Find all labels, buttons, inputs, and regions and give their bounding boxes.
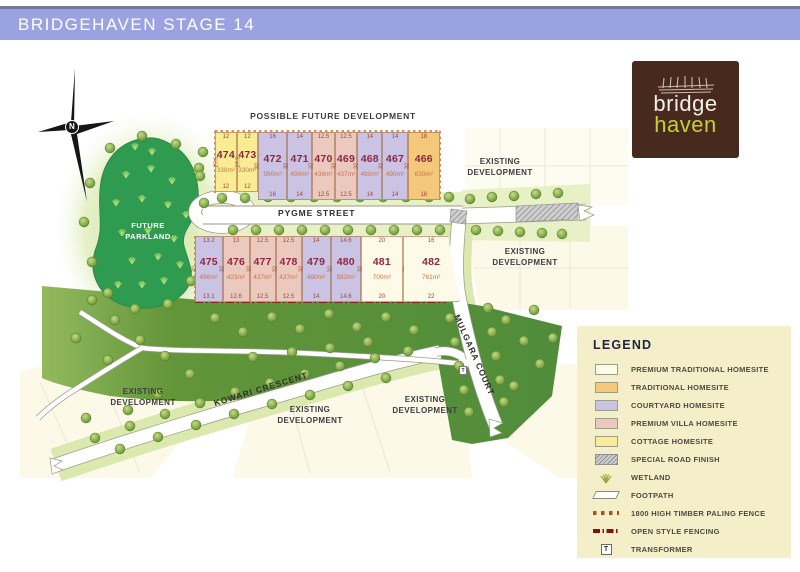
tree-icon	[103, 355, 113, 365]
lot-473-side_dim: 27.5	[236, 157, 242, 168]
tree-icon	[529, 305, 539, 315]
tree-icon	[352, 322, 362, 332]
transformer-icon: T	[593, 544, 619, 555]
tree-icon	[185, 369, 195, 379]
lot-469-bottom_dim: 12.5	[336, 192, 357, 198]
tree-icon	[85, 178, 95, 188]
tree-icon	[137, 131, 147, 141]
lot-470-side_dim: 32	[310, 163, 316, 169]
swatch	[593, 400, 619, 411]
lot-480-area: 582m²	[337, 275, 355, 282]
tree-icon	[87, 257, 97, 267]
legend-item-label: COTTAGE HOMESITE	[631, 437, 713, 446]
lot-474: 12474330m²1227.5	[215, 132, 237, 192]
lot-469-top_dim: 12.5	[336, 134, 357, 140]
tree-icon	[240, 193, 250, 203]
lot-476-area: 423m²	[227, 275, 245, 282]
tree-icon	[79, 217, 89, 227]
legend-item: COURTYARD HOMESITE	[593, 396, 791, 414]
tree-icon	[465, 194, 475, 204]
tree-icon	[248, 352, 258, 362]
tree-icon	[412, 225, 422, 235]
lot-466-side_dim: 32	[405, 163, 411, 169]
tree-icon	[487, 192, 497, 202]
lot-472-top_dim: 16	[259, 134, 286, 140]
lot-470-bottom_dim: 12.5	[313, 192, 334, 198]
lot-480-side_dim: 32	[328, 266, 334, 272]
legend-item-label: PREMIUM TRADITIONAL HOMESITE	[631, 365, 769, 374]
footpath-icon	[593, 491, 619, 499]
tree-icon	[409, 325, 419, 335]
lot-469-area: 437m²	[337, 172, 355, 179]
tree-icon	[153, 432, 163, 442]
transformer-letter: T	[601, 544, 612, 555]
tree-icon	[343, 225, 353, 235]
tree-icon	[130, 304, 140, 314]
tree-icon	[105, 143, 115, 153]
lot-476-side_dim: 32	[220, 266, 226, 272]
legend-item: SPECIAL ROAD FINISH	[593, 450, 791, 468]
tree-icon	[531, 189, 541, 199]
tree-icon	[125, 421, 135, 431]
lot-474-bottom_dim: 12	[216, 184, 236, 190]
lot-469-number: 469	[337, 154, 355, 165]
future-parkland-label: FUTURE PARKLAND	[116, 221, 180, 242]
existing-development-label: EXISTING DEVELOPMENT	[454, 156, 546, 178]
tree-icon	[160, 351, 170, 361]
lot-467-number: 467	[386, 154, 404, 165]
legend-item: 1800 HIGH TIMBER PALING FENCE	[593, 504, 791, 522]
lot-469-side_dim: 32	[332, 163, 338, 169]
swatch	[593, 382, 619, 393]
tree-icon	[267, 312, 277, 322]
tree-icon	[537, 228, 547, 238]
logo-word-haven: haven	[632, 115, 739, 136]
lot-481-top_dim: 20	[362, 238, 402, 244]
lot-466-number: 466	[415, 154, 433, 165]
tree-icon	[435, 225, 445, 235]
tree-icon	[324, 309, 334, 319]
tree-icon	[217, 193, 227, 203]
tree-icon	[444, 192, 454, 202]
tree-icon	[305, 390, 315, 400]
lot-467-side_dim: 32	[380, 163, 386, 169]
lot-478-bottom_dim: 12.5	[277, 294, 301, 300]
tree-icon	[191, 420, 201, 430]
lot-476-number: 476	[227, 257, 245, 268]
existing-development-label: EXISTING DEVELOPMENT	[264, 404, 356, 426]
tree-icon	[509, 381, 519, 391]
tree-icon	[229, 409, 239, 419]
legend-title: LEGEND	[593, 338, 791, 352]
lot-472-area: 560m²	[263, 172, 281, 179]
lot-471-number: 471	[291, 154, 309, 165]
lot-482-area: 761m²	[422, 275, 440, 282]
tree-icon	[274, 225, 284, 235]
lot-467-bottom_dim: 14	[383, 192, 406, 198]
legend-item: OPEN STYLE FENCING	[593, 522, 791, 540]
tree-icon	[81, 413, 91, 423]
lot-468-top_dim: 14	[358, 134, 381, 140]
lot-481-bottom_dim: 20	[362, 294, 402, 300]
lot-479: 14479490m²1432	[302, 236, 331, 302]
lot-474-area: 330m²	[217, 168, 235, 175]
possible-future-development-label: POSSIBLE FUTURE DEVELOPMENT	[223, 111, 443, 123]
lot-471-top_dim: 14	[288, 134, 311, 140]
tree-icon	[160, 409, 170, 419]
lot-470-number: 470	[314, 154, 332, 165]
tree-icon	[499, 397, 509, 407]
tree-icon	[483, 303, 493, 313]
lot-479-number: 479	[307, 257, 325, 268]
tree-icon	[87, 295, 97, 305]
lot-466-top_dim: 18	[409, 134, 439, 140]
legend-item-label: SPECIAL ROAD FINISH	[631, 455, 720, 464]
lot-478-number: 478	[279, 257, 297, 268]
lot-482-number: 482	[422, 257, 440, 268]
tree-icon	[381, 373, 391, 383]
lot-473-top_dim: 12	[238, 134, 258, 140]
lot-477-area: 437m²	[253, 275, 271, 282]
tree-icon	[195, 171, 205, 181]
tree-icon	[320, 225, 330, 235]
tree-icon	[548, 333, 558, 343]
lot-474-top_dim: 12	[216, 134, 236, 140]
lot-477-top_dim: 12.5	[251, 238, 275, 244]
tree-icon	[103, 288, 113, 298]
tree-icon	[295, 324, 305, 334]
bridge-sketch-icon	[656, 73, 716, 99]
lot-479-area: 490m²	[307, 275, 325, 282]
tree-icon	[343, 381, 353, 391]
lot-481-area: 700m²	[373, 275, 391, 282]
legend-item: WETLAND	[593, 468, 791, 486]
legend-item-label: PREMIUM VILLA HOMESITE	[631, 419, 738, 428]
lot-478-area: 437m²	[279, 275, 297, 282]
lot-472-bottom_dim: 16	[259, 192, 286, 198]
tree-icon	[366, 225, 376, 235]
tree-icon	[403, 346, 413, 356]
transformer-icon: T	[459, 366, 467, 375]
header-bar: BRIDGEHAVEN STAGE 14	[0, 9, 800, 40]
lot-473-bottom_dim: 12	[238, 184, 258, 190]
lot-481: 20481700m²2032	[361, 236, 403, 302]
bridgehaven-logo: bridge haven	[632, 61, 739, 158]
lot-480-top_dim: 14.6	[332, 238, 360, 244]
lot-466: 18466630m²1832	[408, 132, 440, 200]
lot-475-top_dim: 13.2	[196, 238, 222, 244]
tree-icon	[251, 225, 261, 235]
lot-475-number: 475	[200, 257, 218, 268]
lot-474-side_dim: 27.5	[215, 157, 221, 168]
lot-476-top_dim: 13	[224, 238, 249, 244]
tree-icon	[198, 147, 208, 157]
lot-468-number: 468	[361, 154, 379, 165]
tree-icon	[535, 359, 545, 369]
tree-icon	[135, 335, 145, 345]
lot-466-bottom_dim: 18	[409, 192, 439, 198]
tree-icon	[171, 139, 181, 149]
legend-item: FOOTPATH	[593, 486, 791, 504]
compass-north-label: N	[69, 122, 75, 131]
tree-icon	[228, 225, 238, 235]
lot-468-side_dim: 32	[355, 163, 361, 169]
legend-panel: LEGEND PREMIUM TRADITIONAL HOMESITETRADI…	[577, 326, 791, 558]
tree-icon	[487, 327, 497, 337]
tree-icon	[71, 333, 81, 343]
tree-icon	[238, 327, 248, 337]
tree-icon	[495, 375, 505, 385]
lot-466-area: 630m²	[415, 172, 433, 179]
site-plan-page: BRIDGEHAVEN STAGE 14 N 12474330m²1227.51…	[0, 0, 800, 572]
lot-470-area: 438m²	[314, 172, 332, 179]
legend-item: COTTAGE HOMESITE	[593, 432, 791, 450]
paling-fence-icon	[593, 511, 619, 515]
lot-475-bottom_dim: 13.1	[196, 294, 222, 300]
tree-icon	[381, 312, 391, 322]
lot-477-bottom_dim: 12.5	[251, 294, 275, 300]
lot-478-side_dim: 32	[273, 266, 279, 272]
lot-480-number: 480	[337, 257, 355, 268]
legend-item: PREMIUM VILLA HOMESITE	[593, 414, 791, 432]
lot-478-top_dim: 12.5	[277, 238, 301, 244]
legend-item: TRADITIONAL HOMESITE	[593, 378, 791, 396]
lot-482-bottom_dim: 22	[404, 294, 459, 300]
tree-icon	[363, 337, 373, 347]
tree-icon	[163, 299, 173, 309]
existing-development-label: EXISTING DEVELOPMENT	[379, 394, 471, 416]
lot-475-side_dim: 32	[192, 266, 198, 272]
tree-icon	[199, 198, 209, 208]
tree-icon	[210, 313, 220, 323]
swatch	[593, 436, 619, 447]
legend-item: PREMIUM TRADITIONAL HOMESITE	[593, 360, 791, 378]
tree-icon	[515, 227, 525, 237]
tree-icon	[493, 226, 503, 236]
tree-icon	[519, 336, 529, 346]
lot-471-side_dim: 32	[284, 163, 290, 169]
wetland-icon	[593, 470, 619, 484]
lot-467-top_dim: 14	[383, 134, 406, 140]
tree-icon	[115, 444, 125, 454]
lot-470-top_dim: 12.5	[313, 134, 334, 140]
tree-icon	[501, 315, 511, 325]
lot-481-number: 481	[373, 257, 391, 268]
lot-475-area: 496m²	[200, 275, 218, 282]
tree-icon	[553, 188, 563, 198]
tree-icon	[297, 225, 307, 235]
tree-icon	[491, 351, 501, 361]
tree-icon	[370, 353, 380, 363]
legend-item-label: TRANSFORMER	[631, 545, 693, 554]
tree-icon	[335, 361, 345, 371]
open-fence-icon	[593, 529, 619, 533]
tree-icon	[195, 398, 205, 408]
lot-479-bottom_dim: 14	[303, 294, 330, 300]
tree-icon	[90, 433, 100, 443]
existing-development-label: EXISTING DEVELOPMENT	[97, 386, 189, 408]
lot-468-bottom_dim: 14	[358, 192, 381, 198]
lot-476-bottom_dim: 12.6	[224, 294, 249, 300]
lot-479-side_dim: 32	[299, 266, 305, 272]
tree-icon	[110, 315, 120, 325]
swatch	[593, 364, 619, 375]
legend-item-label: OPEN STYLE FENCING	[631, 527, 720, 536]
tree-icon	[471, 225, 481, 235]
legend-item-label: FOOTPATH	[631, 491, 674, 500]
lot-472-number: 472	[264, 154, 282, 165]
legend-item: TTRANSFORMER	[593, 540, 791, 558]
lot-468-area: 490m²	[361, 172, 379, 179]
page-title: BRIDGEHAVEN STAGE 14	[18, 15, 255, 35]
lot-472-side_dim: 32	[256, 163, 262, 169]
lot-479-top_dim: 14	[303, 238, 330, 244]
lot-481-side_dim: 32	[358, 266, 364, 272]
tree-icon	[325, 343, 335, 353]
lot-467-area: 490m²	[386, 172, 404, 179]
legend-item-label: WETLAND	[631, 473, 671, 482]
lot-477-side_dim: 32	[247, 266, 253, 272]
hatch-swatch	[593, 454, 619, 465]
street-name-pygme: PYGME STREET	[278, 208, 355, 218]
tree-icon	[287, 347, 297, 357]
legend-item-label: 1800 HIGH TIMBER PALING FENCE	[631, 509, 765, 518]
legend-item-label: COURTYARD HOMESITE	[631, 401, 725, 410]
swatch	[593, 418, 619, 429]
tree-icon	[389, 225, 399, 235]
tree-icon	[557, 229, 567, 239]
tree-icon	[450, 337, 460, 347]
tree-icon	[509, 191, 519, 201]
lot-477-number: 477	[253, 257, 271, 268]
lot-471-bottom_dim: 14	[288, 192, 311, 198]
legend-item-label: TRADITIONAL HOMESITE	[631, 383, 729, 392]
lot-471-area: 490m²	[290, 172, 308, 179]
existing-development-label: EXISTING DEVELOPMENT	[479, 246, 571, 268]
lot-480-bottom_dim: 14.6	[332, 294, 360, 300]
